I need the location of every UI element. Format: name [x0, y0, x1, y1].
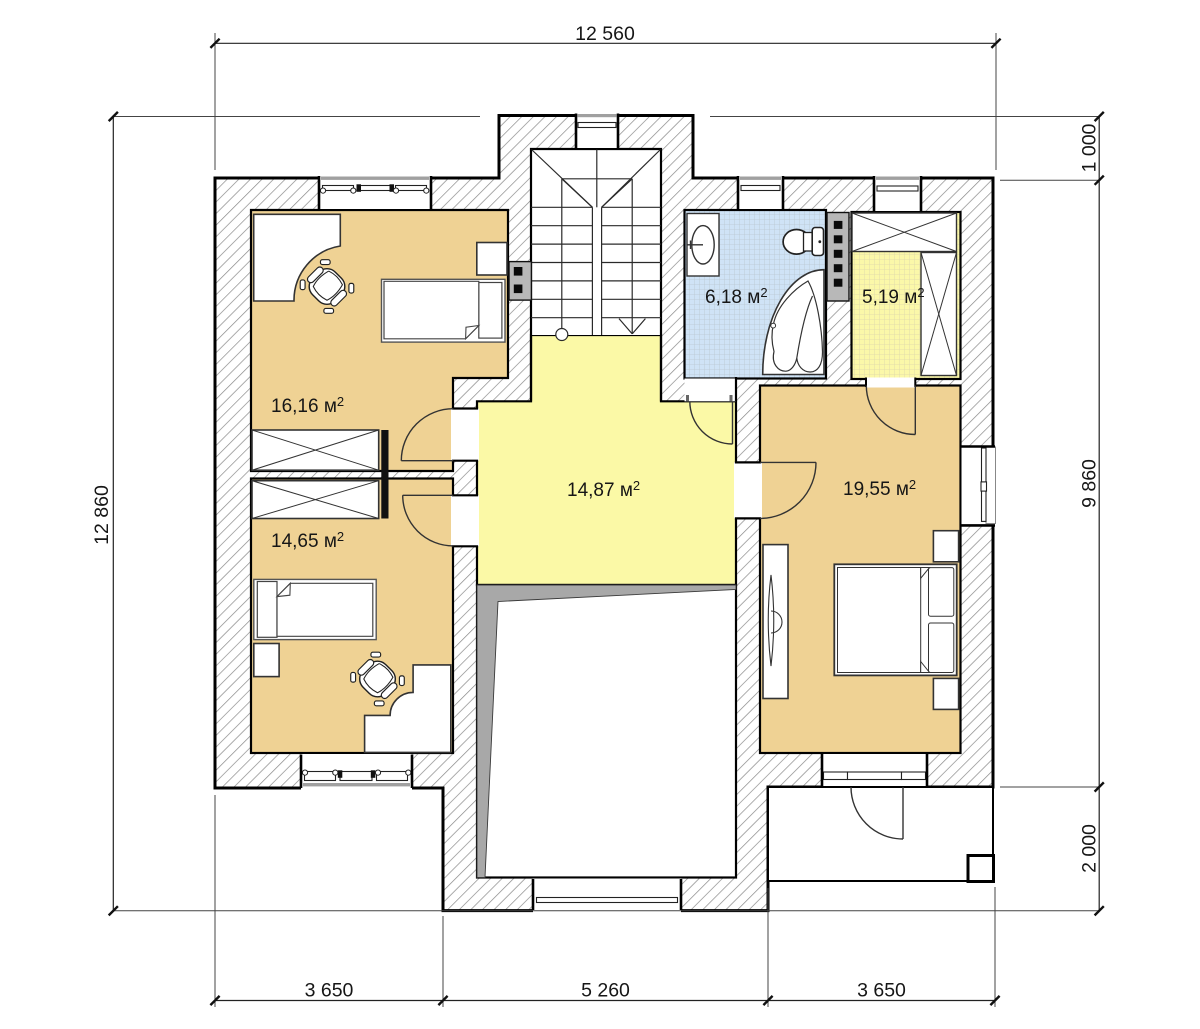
svg-text:14,65 м2: 14,65 м2 [271, 529, 344, 552]
svg-text:3 650: 3 650 [857, 980, 906, 1002]
svg-text:16,16 м2: 16,16 м2 [271, 394, 344, 417]
svg-text:2 000: 2 000 [1079, 824, 1101, 873]
svg-text:12 560: 12 560 [575, 23, 635, 45]
svg-text:9 860: 9 860 [1079, 459, 1101, 508]
svg-text:14,87 м2: 14,87 м2 [567, 478, 640, 501]
svg-text:5,19 м2: 5,19 м2 [862, 285, 925, 308]
svg-text:5 260: 5 260 [581, 980, 630, 1002]
svg-text:1 000: 1 000 [1079, 123, 1101, 172]
svg-text:6,18 м2: 6,18 м2 [705, 285, 768, 308]
svg-text:12 860: 12 860 [91, 485, 113, 545]
svg-text:19,55 м2: 19,55 м2 [843, 477, 916, 500]
svg-text:3 650: 3 650 [305, 980, 354, 1002]
